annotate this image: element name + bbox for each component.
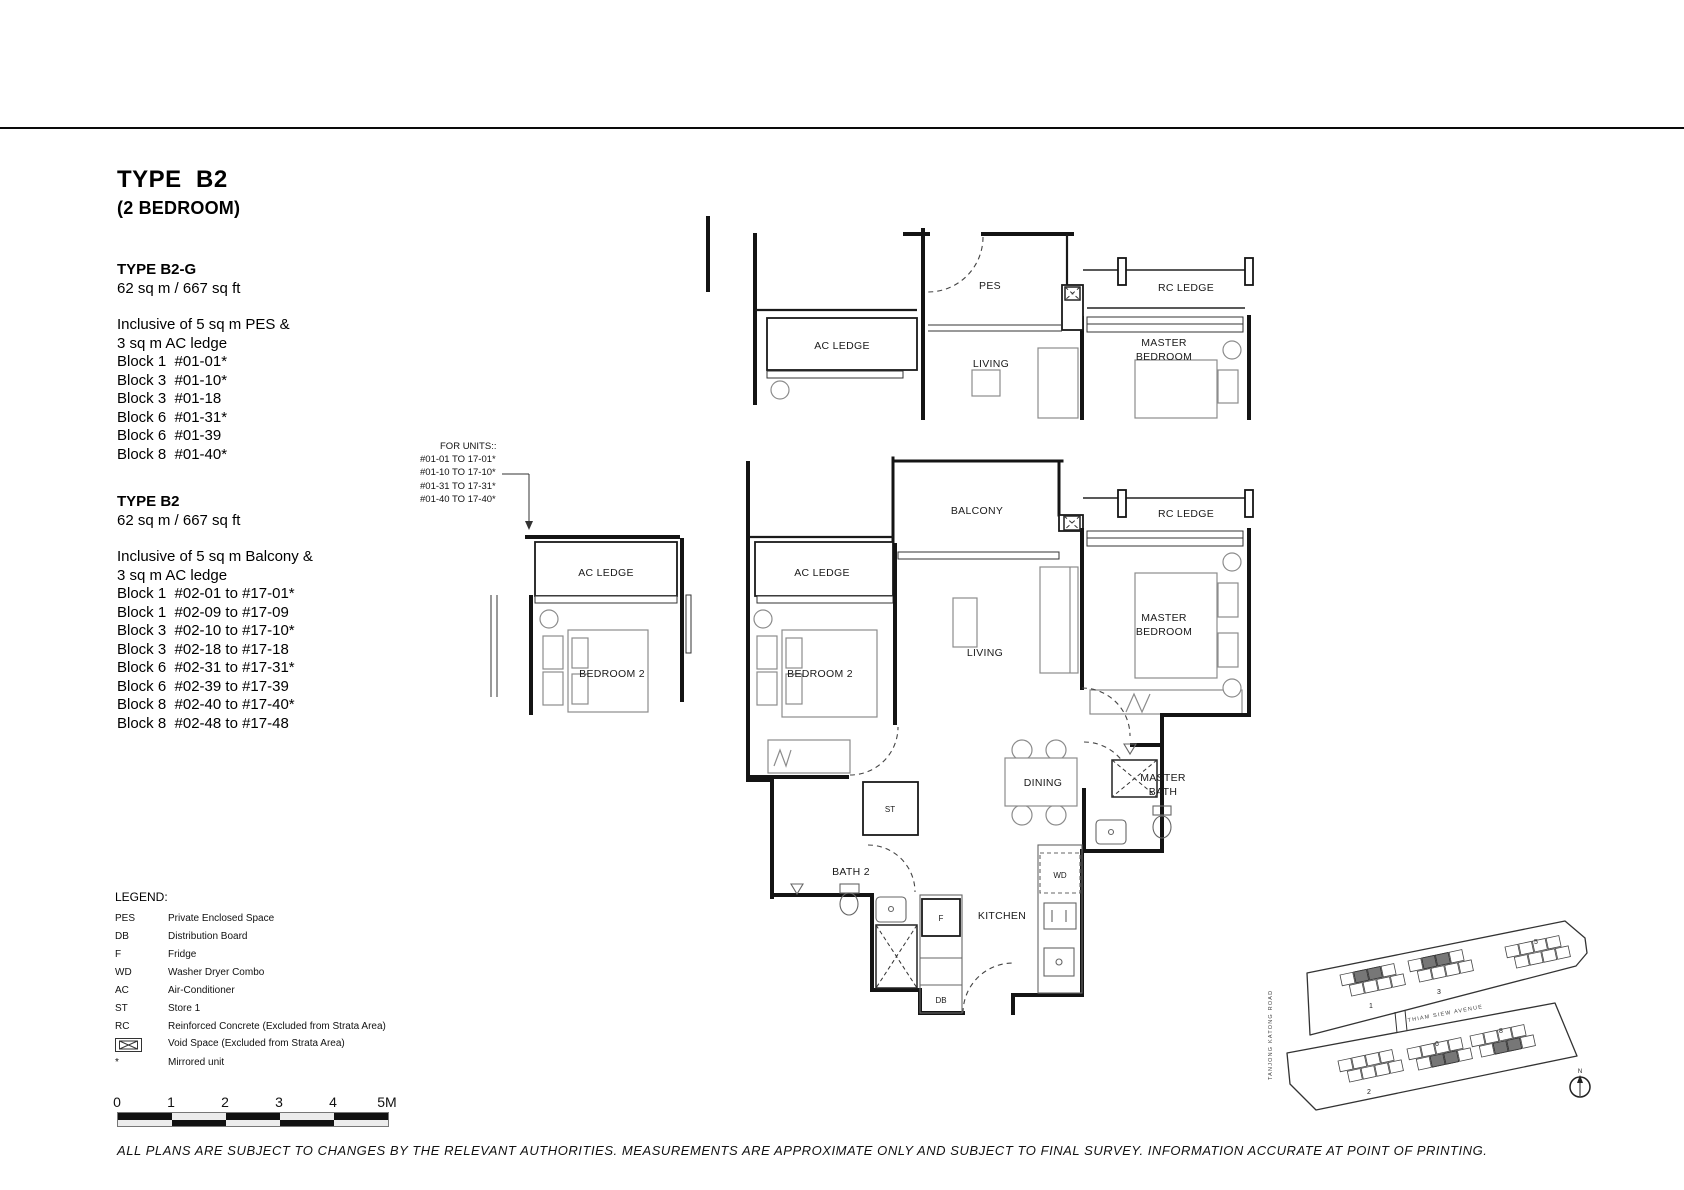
- room-label-ac-ledge: AC LEDGE: [578, 567, 634, 579]
- spec-type-b2g-units: Inclusive of 5 sq m PES & 3 sq m AC ledg…: [117, 316, 290, 464]
- legend-value: Void Space (Excluded from Strata Area): [168, 1038, 345, 1049]
- unit-line: Block 1 #02-01 to #17-01*: [117, 585, 313, 604]
- legend-row-fridge: F Fridge: [115, 949, 535, 963]
- room-label-bedroom2: BEDROOM 2: [579, 668, 645, 680]
- scale-label-0: 0: [102, 1094, 132, 1110]
- room-label-dining: DINING: [1024, 777, 1063, 789]
- top-divider-rule: [0, 127, 1684, 129]
- svg-text:2: 2: [1367, 1089, 1371, 1096]
- unit-line: Block 3 #02-18 to #17-18: [117, 641, 313, 660]
- room-label-pes: PES: [979, 280, 1001, 292]
- legend-row-pes: PES Private Enclosed Space: [115, 913, 535, 927]
- bath2-fixtures: [791, 884, 906, 922]
- legend-key: WD: [115, 967, 132, 978]
- page-title: TYPE B2: [117, 166, 228, 194]
- fixture-label-store: ST: [885, 805, 895, 814]
- legend-value: Mirrored unit: [168, 1057, 224, 1068]
- unit-line: Block 3 #01-10*: [117, 372, 290, 391]
- adjacent-unit-fragment: AC LEDGE BEDROOM 2: [491, 537, 691, 713]
- pes-entry-door-arc: [928, 237, 983, 292]
- unit-line: Block 1 #02-09 to #17-09: [117, 604, 313, 623]
- legend-key: F: [115, 949, 121, 960]
- room-label-rc-ledge: RC LEDGE: [1158, 508, 1214, 520]
- fixture-label-fridge: F: [939, 914, 944, 923]
- room-label-master-bedroom: BEDROOM: [1136, 626, 1192, 638]
- inclusive-line: 3 sq m AC ledge: [117, 567, 313, 586]
- fixture-label-washer-dryer: WD: [1053, 871, 1067, 880]
- legend-row-db: DB Distribution Board: [115, 931, 535, 945]
- svg-text:3: 3: [1437, 989, 1441, 996]
- room-label-balcony: BALCONY: [951, 505, 1003, 517]
- unit-line: Block 6 #01-31*: [117, 409, 290, 428]
- legend-row-mirrored: * Mirrored unit: [115, 1057, 535, 1071]
- scale-label-2: 2: [210, 1094, 240, 1110]
- legend-value: Distribution Board: [168, 931, 247, 942]
- spec-area: 62 sq m / 667 sq ft: [117, 512, 240, 531]
- unit-line: Block 3 #02-10 to #17-10*: [117, 622, 313, 641]
- legend-value: Air-Conditioner: [168, 985, 235, 996]
- fixture-label-db: DB: [935, 996, 946, 1005]
- room-label-living: LIVING: [973, 358, 1009, 370]
- legend-key: AC: [115, 985, 129, 996]
- unit-line: Block 6 #01-39: [117, 427, 290, 446]
- ground-floor-partial-plan: PES AC LEDGE RC LEDGE LIVING MASTER BEDR…: [708, 218, 1253, 418]
- inclusive-line: Inclusive of 5 sq m PES &: [117, 316, 290, 335]
- balcony-sliding-door: [898, 552, 1059, 559]
- spec-name: TYPE B2-G: [117, 261, 240, 280]
- inclusive-line: Inclusive of 5 sq m Balcony &: [117, 548, 313, 567]
- svg-text:5: 5: [1534, 939, 1538, 946]
- legend-row-rc: RC Reinforced Concrete (Excluded from St…: [115, 1021, 535, 1035]
- legend-row-st: ST Store 1: [115, 1003, 535, 1017]
- disclaimer-text: ALL PLANS ARE SUBJECT TO CHANGES BY THE …: [117, 1143, 1487, 1158]
- scale-label-5m: 5M: [372, 1094, 402, 1110]
- legend-value: Store 1: [168, 1003, 200, 1014]
- legend-value: Private Enclosed Space: [168, 913, 274, 924]
- spec-area: 62 sq m / 667 sq ft: [117, 280, 240, 299]
- legend-value: Reinforced Concrete (Excluded from Strat…: [168, 1021, 386, 1032]
- page-subtitle: (2 BEDROOM): [117, 198, 240, 219]
- legend-row-wd: WD Washer Dryer Combo: [115, 967, 535, 981]
- legend-key: PES: [115, 913, 135, 924]
- floorplan-page: TYPE B2 (2 BEDROOM) TYPE B2-G 62 sq m / …: [0, 0, 1684, 1190]
- site-plan: 1 3 5 2 6: [1240, 885, 1610, 1130]
- spec-type-b2: TYPE B2 62 sq m / 667 sq ft: [117, 493, 240, 530]
- legend-row-ac: AC Air-Conditioner: [115, 985, 535, 999]
- legend-key: *: [115, 1057, 119, 1068]
- legend-key: DB: [115, 931, 129, 942]
- svg-text:1: 1: [1369, 1003, 1373, 1010]
- unit-line: Block 1 #01-01*: [117, 353, 290, 372]
- spec-name: TYPE B2: [117, 493, 240, 512]
- unit-line: Block 6 #02-31 to #17-31*: [117, 659, 313, 678]
- room-label-master-bedroom: BEDROOM: [1136, 351, 1192, 363]
- fragment-furniture: [540, 610, 648, 712]
- room-label-master-bedroom: MASTER: [1141, 612, 1187, 624]
- void-space-symbol: [1065, 287, 1080, 300]
- room-label-master-bath: BATH: [1149, 786, 1177, 798]
- scale-label-1: 1: [156, 1094, 186, 1110]
- spec-type-b2-units: Inclusive of 5 sq m Balcony & 3 sq m AC …: [117, 548, 313, 733]
- legend-key: ST: [115, 1003, 128, 1014]
- room-label-bath2: BATH 2: [832, 866, 870, 878]
- svg-text:N: N: [1578, 1069, 1582, 1075]
- unit-line: Block 8 #02-48 to #17-48: [117, 715, 313, 734]
- road-label-tanjong-katong: TANJONG KATONG ROAD: [1268, 990, 1274, 1080]
- unit-line: Block 3 #01-18: [117, 390, 290, 409]
- inclusive-line: 3 sq m AC ledge: [117, 335, 290, 354]
- scale-bar: [117, 1112, 389, 1127]
- for-units-leader-line: [502, 474, 533, 530]
- room-label-kitchen: KITCHEN: [978, 910, 1026, 922]
- scale-label-4: 4: [318, 1094, 348, 1110]
- void-space-icon: [115, 1038, 142, 1055]
- svg-text:8: 8: [1499, 1028, 1503, 1035]
- legend-row-void: Void Space (Excluded from Strata Area): [115, 1038, 535, 1052]
- room-label-master-bath: MASTER: [1140, 772, 1186, 784]
- unit-line: Block 6 #02-39 to #17-39: [117, 678, 313, 697]
- legend-heading: LEGEND:: [115, 890, 168, 904]
- room-label-ac-ledge: AC LEDGE: [794, 567, 850, 579]
- room-label-living: LIVING: [967, 647, 1003, 659]
- scale-label-3: 3: [264, 1094, 294, 1110]
- room-label-ac-ledge: AC LEDGE: [814, 340, 870, 352]
- legend-value: Fridge: [168, 949, 196, 960]
- void-space-symbol: [1064, 516, 1080, 530]
- spec-type-b2g: TYPE B2-G 62 sq m / 667 sq ft: [117, 261, 240, 298]
- void-space-symbol: [876, 925, 917, 988]
- room-label-master-bedroom: MASTER: [1141, 337, 1187, 349]
- legend-key: RC: [115, 1021, 129, 1032]
- room-label-rc-ledge: RC LEDGE: [1158, 282, 1214, 294]
- svg-text:6: 6: [1435, 1041, 1439, 1048]
- main-unit-plan: AC LEDGE BALCONY RC LEDGE LIVING MASTER …: [748, 458, 1253, 1013]
- north-arrow-icon: N: [1570, 1069, 1590, 1097]
- unit-line: Block 8 #01-40*: [117, 446, 290, 465]
- legend-value: Washer Dryer Combo: [168, 967, 264, 978]
- unit-line: Block 8 #02-40 to #17-40*: [117, 696, 313, 715]
- room-label-bedroom2: BEDROOM 2: [787, 668, 853, 680]
